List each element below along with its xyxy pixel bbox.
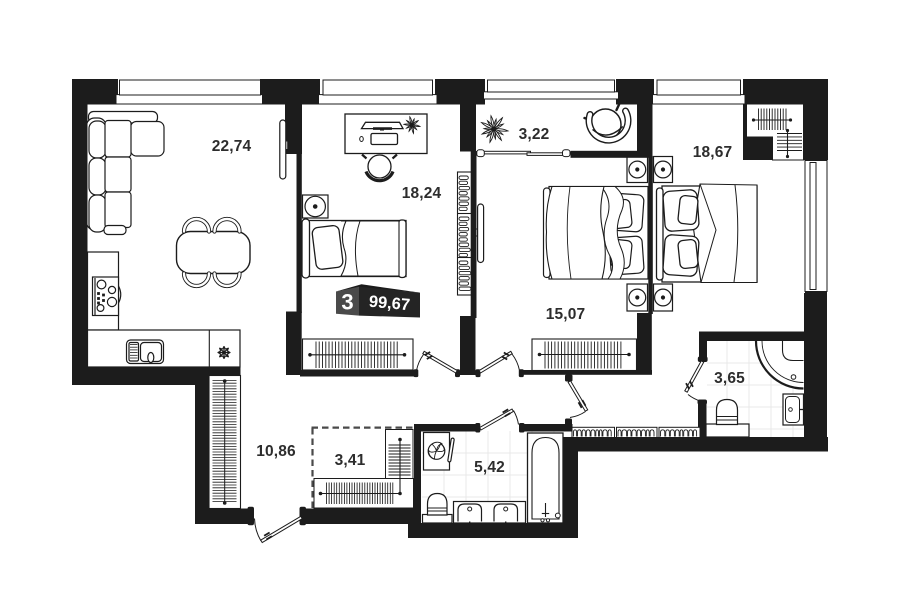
svg-text:10,86: 10,86 bbox=[256, 443, 296, 460]
svg-text:3,22: 3,22 bbox=[519, 126, 550, 143]
svg-text:3,65: 3,65 bbox=[714, 370, 745, 387]
svg-text:22,74: 22,74 bbox=[212, 138, 252, 155]
svg-text:5,42: 5,42 bbox=[474, 459, 505, 476]
svg-text:15,07: 15,07 bbox=[546, 306, 586, 323]
svg-text:3: 3 bbox=[341, 290, 353, 315]
svg-text:18,24: 18,24 bbox=[402, 185, 442, 202]
svg-text:18,67: 18,67 bbox=[693, 144, 733, 161]
svg-text:3,41: 3,41 bbox=[335, 452, 366, 469]
svg-text:99,67: 99,67 bbox=[368, 293, 411, 315]
